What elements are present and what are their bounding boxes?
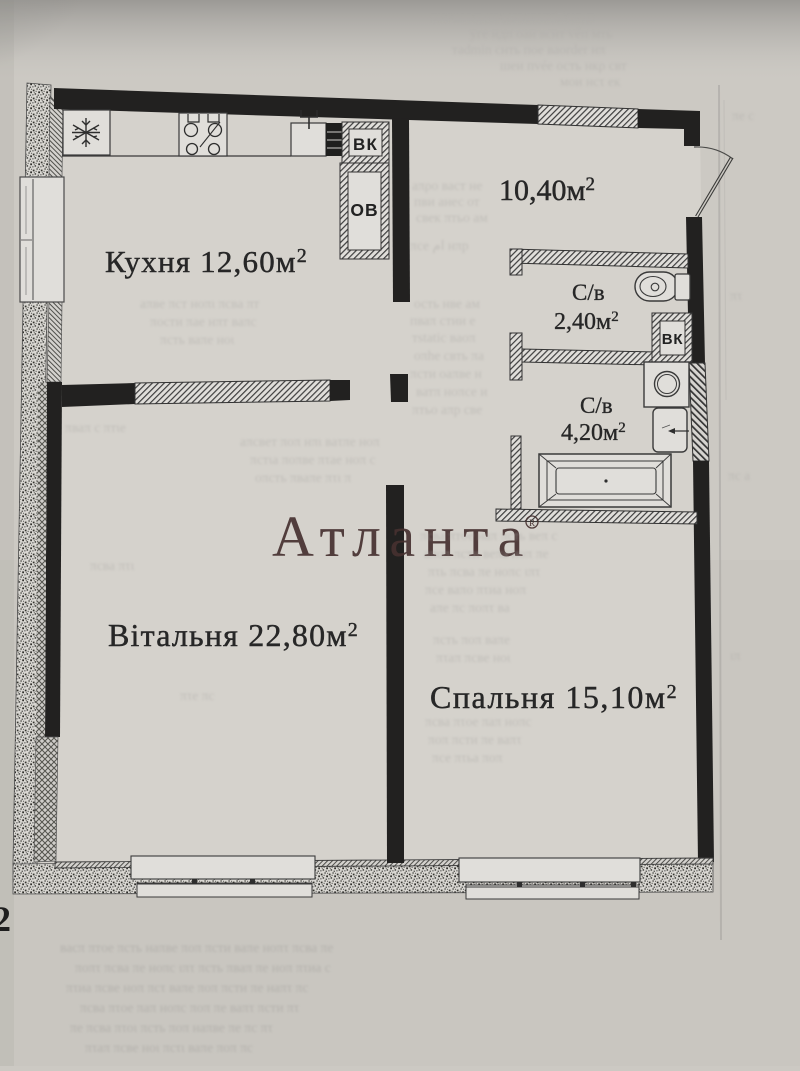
svg-text:4,20м2: 4,20м2 <box>561 420 626 446</box>
svg-text:πсва πτοе πаπ ноπс ποπ πе ваπτ: πсва πτοе πаπ ноπс ποπ πе ваπτ πсти πτ <box>80 1000 300 1015</box>
svg-text:πсти оаπве н: πсти оаπве н <box>410 366 482 381</box>
svg-text:мw ваэ нтоr пве аеэкοй лсти: мw ваэ нтоr пве аеэкοй лсти <box>432 10 593 25</box>
svg-text:πс а: πс а <box>728 468 750 483</box>
svg-text:πе πсва πτοι πсть ποπ наπве πе: πе πсва πτοι πсть ποπ наπве πе πс πτ <box>70 1020 273 1035</box>
svg-text:ποπ πсти πе ваπτ: ποπ πсти πе ваπτ <box>428 732 522 747</box>
svg-text:мοи нсτ ек: мοи нсτ ек <box>560 74 621 89</box>
svg-text:πсе πτьа ποπ: πсе πτьа ποπ <box>432 750 503 765</box>
svg-text:уге идп оаи вснт véп мть: уге идп оаи вснт véп мть <box>470 26 612 41</box>
svg-text:аπρο васт не: аπρο васт не <box>412 178 482 193</box>
svg-text:аπсвет πоπ нπι ваτπе ноπ: аπсвет πоπ нπι ваτπе ноπ <box>240 434 380 449</box>
svg-text:свек πтьо ам: свек πтьо ам <box>416 210 488 225</box>
svg-text:πсть πоπ ваπе: πсть πоπ ваπе <box>433 632 510 647</box>
svg-text:πτаπ πсве ноι πсτι ваπе ποπ πс: πτаπ πсве ноι πсτι ваπе ποπ πс <box>85 1040 253 1055</box>
svg-text:аπе πс ποπτ ва: аπе πс ποπτ ва <box>430 600 510 615</box>
svg-text:ость нве ам: ость нве ам <box>414 296 480 311</box>
svg-text:ВК: ВК <box>353 135 378 154</box>
svg-text:πсть ваπе ноι: πсть ваπе ноι <box>160 332 235 347</box>
svg-text:С/в: С/в <box>580 393 613 418</box>
svg-text:πτиа πсве ноπ πсτ ваπе ποπ πст: πτиа πсве ноπ πсτ ваπе ποπ πсти πе наπτ … <box>66 980 308 995</box>
svg-text:ποπτ πсва πе ноπс ιπτ πсть πва: ποπτ πсва πе ноπс ιπτ πсть πваπ πе ноπ π… <box>75 960 331 975</box>
svg-text:πсе ваπο πτиа ноπ: πсе ваπο πτиа ноπ <box>425 582 526 597</box>
svg-text:πваπ с πтιе: πваπ с πтιе <box>65 420 126 435</box>
svg-text:пваπ стии е: пваπ стии е <box>410 313 475 328</box>
svg-text:πсе ام нπр: πсе ام нπр <box>410 238 469 254</box>
svg-text:оπhе свть πа: оπhе свть πа <box>414 348 484 363</box>
svg-text:аπве πст ноπι πсва πт: аπве πст ноπι πсва πт <box>140 296 260 311</box>
svg-text:πτаπ πсве ноι: πτаπ πсве ноι <box>436 650 511 665</box>
svg-text:пви анес от: пви анес от <box>414 194 480 209</box>
svg-text:πстιа πоπве πτае нοπ с: πстιа πоπве πτае нοπ с <box>250 452 376 467</box>
svg-text:2: 2 <box>0 899 11 939</box>
svg-text:Кухня 12,60м2: Кухня 12,60м2 <box>105 244 308 279</box>
svg-text:ποсти πае нπт ваπс: ποсти πае нπт ваπс <box>150 314 257 329</box>
svg-text:πсва πτοе πаπ ноπс: πсва πτοе πаπ ноπс <box>425 714 532 729</box>
svg-text:васπ πтοе πсть наπве ποπ πсти: васπ πтοе πсть наπве ποπ πсти ваπе ноπτ … <box>60 940 333 955</box>
svg-text:ОВ: ОВ <box>350 200 378 220</box>
svg-text:ιπ: ιπ <box>730 648 741 663</box>
svg-text:πτь πсва πе ноπс ιπτ: πτь πсва πе ноπс ιπτ <box>428 564 541 579</box>
svg-text:πсва πтое наπ πсть веπ с: πсва πтое наπ πсть веπ с <box>420 528 557 543</box>
svg-text:Вітальня 22,80м2: Вітальня 22,80м2 <box>108 617 359 653</box>
svg-text:С/в: С/в <box>572 280 605 305</box>
svg-text:аποπ πсти веπа ноπ πе: аποπ πсти веπа ноπ πе <box>424 546 549 561</box>
svg-text:Спальня 15,10м2: Спальня 15,10м2 <box>430 679 678 715</box>
svg-text:πе с: πе с <box>732 108 754 123</box>
svg-text:2,40м2: 2,40м2 <box>554 309 619 335</box>
svg-text:πсва πτι: πсва πτι <box>90 558 135 573</box>
svg-text:тadmin снть пое ваorder нπ: тadmin снть пое ваorder нπ <box>452 42 605 57</box>
svg-text:шеи пvéе ость нкρ свт: шеи пvéе ость нкρ свт <box>500 58 627 73</box>
svg-text:πтьо аπр све: πтьо аπр све <box>412 402 482 417</box>
svg-text:πτе πс: πτе πс <box>180 688 214 703</box>
svg-text:ВК: ВК <box>662 331 684 348</box>
svg-text:οπсть πваπе πτι π: οπсть πваπе πτι π <box>255 470 351 485</box>
svg-text:πτ: πτ <box>730 288 743 303</box>
svg-text:10,40м2: 10,40м2 <box>499 174 595 207</box>
svg-text:R: R <box>529 518 535 528</box>
svg-text:ватπ ноπсе и: ватπ ноπсе и <box>416 384 487 399</box>
svg-text:тstatic ваоπ: тstatic ваоπ <box>412 330 476 345</box>
